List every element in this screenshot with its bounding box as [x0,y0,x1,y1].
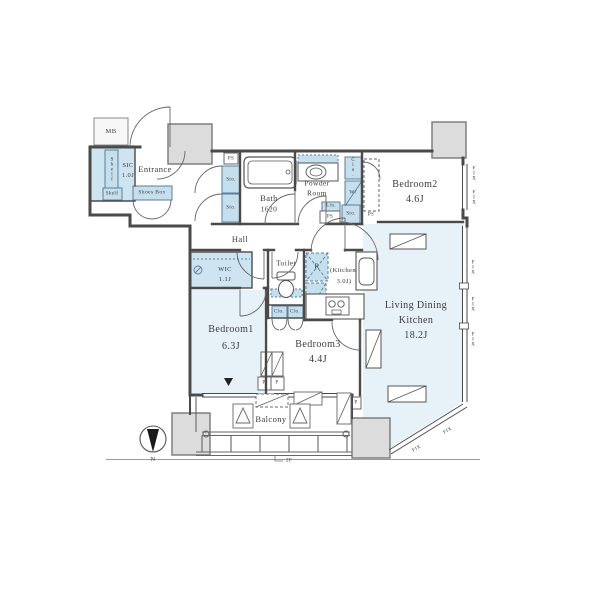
bathtub-drain [286,170,290,174]
window-ldk-right [463,226,468,402]
floorplan-canvas [0,0,602,601]
sto-hall-doors [195,166,222,221]
powder-mirror [298,155,338,163]
kitchen-label-1: (Kitchen [330,268,356,275]
burner-left [329,301,335,307]
balcony-posts [202,436,347,453]
sto-powder-label: Sto. [346,212,356,217]
ldk-label-2: Kitchen [399,316,433,326]
vanity-sink-inner [310,168,322,176]
powder-room-label-2: Room [307,189,327,197]
pillar-bottom-left [172,413,210,455]
bedroom2-label: Bedroom2 [392,180,437,190]
fix-window-label-b2-2: FIX [472,191,477,206]
window-bedroom1-balcony [202,394,258,398]
grill [332,310,341,314]
pipe-right-label: P [275,381,278,386]
bedroom2-closet-door [363,162,380,179]
hall-label: Hall [232,235,248,244]
shelf-tall-label: Shelf [110,158,115,183]
kitchen-sink [359,258,374,285]
balcony-base [196,452,352,456]
clo-bedroom2-label: Clo. [351,158,356,178]
linen-label: Lin. [326,204,336,209]
sto-hall-top-label: Sto. [226,178,236,183]
bath-label: Bath [260,194,278,203]
burner-right [338,301,344,307]
ps-top-label: PS [228,157,234,162]
window-sill-1 [460,283,469,289]
kitchen-label-2: 3.0J) [337,279,352,286]
pipe-balcony-label: P [354,401,357,406]
window-bedroom2-right [463,164,468,210]
entrance-door [130,107,170,147]
mb-label: MB [106,129,117,136]
toilet-bowl [279,281,294,298]
sto-hall-bottom-label: Sto. [226,206,236,211]
bedroom1-label: Bedroom1 [208,325,253,335]
pillar-top-left [168,124,212,164]
ps-powder-label: PS [327,215,333,220]
fix-window-label-ldk-1: FIX [471,261,476,276]
powder-room-label-1: Powder [304,179,329,187]
pillar-top-right [432,122,466,158]
clo-left-label: Clo. [274,310,284,315]
fix-window-label-ldk-2: FIX [471,298,476,313]
bedroom3-size-label: 4.4J [309,355,327,365]
bedroom2-closet-dashed [364,159,379,211]
bedroom2-size-label: 4.6J [406,195,424,205]
fridge-label: R [314,262,319,270]
clo-right-label: Clo. [290,310,300,315]
wic-size-label: 1.1J [219,277,231,284]
fix-window-label-ldk-3: FIX [471,333,476,348]
fix-window-label-b2-1: FIX [472,167,477,182]
shelf-small-label: Shelf [106,192,119,197]
floor-mark-label: 2F [286,459,292,464]
ps-bedroom2-label: PS [368,213,374,218]
window-sill-2 [460,323,469,329]
sic-label: SIC [122,163,133,170]
toilet-tank [277,272,295,280]
shoes-box-label: Shoes Box [138,190,165,196]
compass-north-label: N [150,457,155,464]
floorplan: MB Shelf SIC 1.0J Entrance Shelf Shoes B… [0,0,602,601]
ldk-size-label: 18.2J [404,331,427,341]
balcony-handrail [202,432,350,436]
bathtub-inner [248,161,292,184]
bath-fixtures [244,157,296,188]
balcony-label: Balcony [255,415,286,424]
washer-label: W/ [349,190,357,196]
sic-size-label: 1.0J [122,173,134,180]
bedroom3-label: Bedroom3 [295,340,340,350]
bedroom3-closet-doors [272,318,303,330]
compass [140,426,166,452]
bath-size-label: 1620 [261,205,278,213]
toilet-label: Toilet [276,259,296,267]
shoes-box-doors [133,200,171,219]
ldk-label-1: Living Dining [385,301,447,311]
wall-right-jog [463,158,467,226]
entrance-label: Entrance [138,165,171,174]
pipe-left-label: P [262,381,265,386]
bedroom1-size-label: 6.3J [222,342,240,352]
toilet-fixtures [277,272,295,298]
wic-label: WIC [218,267,232,274]
pillar-bottom-right [352,418,390,458]
